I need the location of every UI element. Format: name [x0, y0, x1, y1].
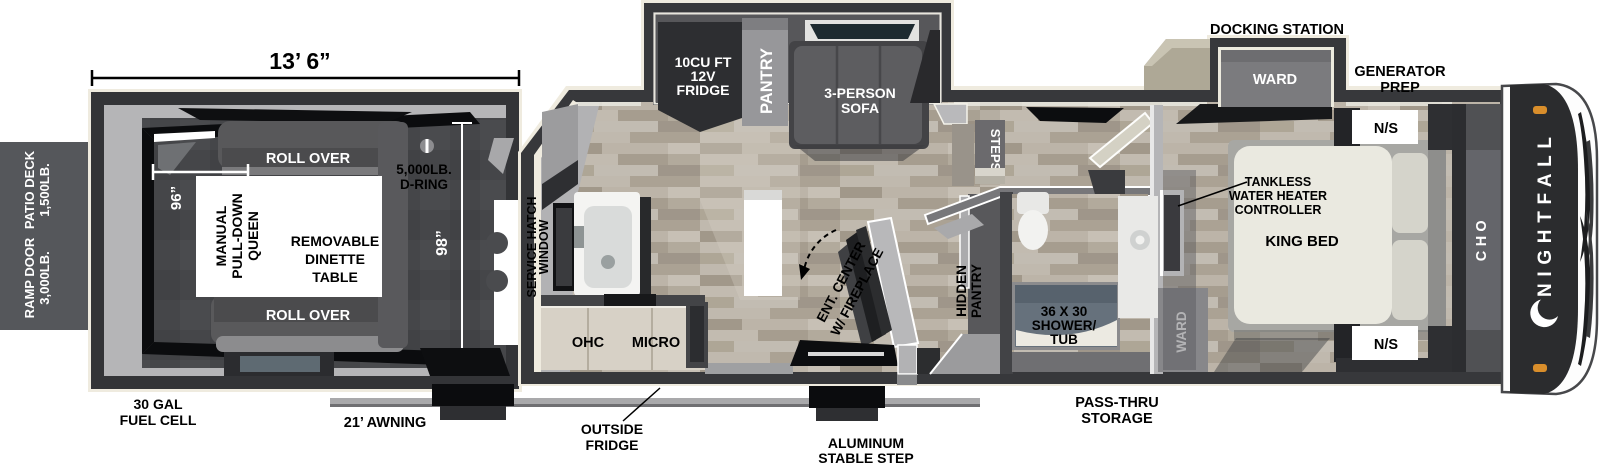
svg-text:PREP: PREP [1380, 80, 1420, 96]
svg-text:PANTRY: PANTRY [969, 264, 984, 318]
svg-text:QUEEN: QUEEN [245, 211, 261, 261]
svg-text:3,000LB.: 3,000LB. [37, 251, 52, 304]
svg-text:SOFA: SOFA [841, 100, 879, 116]
svg-text:TUB: TUB [1050, 332, 1078, 347]
svg-text:KING BED: KING BED [1265, 233, 1339, 250]
svg-text:36 X 30: 36 X 30 [1041, 304, 1088, 319]
svg-text:WATER HEATER: WATER HEATER [1229, 189, 1327, 203]
svg-text:WARD: WARD [1253, 72, 1297, 88]
svg-text:TABLE: TABLE [312, 269, 358, 285]
svg-text:NIGHTFALL: NIGHTFALL [1535, 135, 1556, 297]
svg-text:N/S: N/S [1374, 337, 1399, 353]
svg-text:FRIDGE: FRIDGE [677, 82, 730, 98]
svg-text:ALUMINUM: ALUMINUM [828, 435, 904, 451]
svg-text:CONTROLLER: CONTROLLER [1235, 203, 1322, 217]
svg-text:98”: 98” [434, 230, 451, 256]
svg-text:5,000LB.: 5,000LB. [396, 162, 452, 177]
svg-text:C: C [1474, 250, 1490, 261]
svg-text:21’ AWNING: 21’ AWNING [344, 415, 426, 431]
svg-text:PANTRY: PANTRY [758, 48, 776, 114]
svg-text:MANUAL: MANUAL [213, 205, 229, 266]
svg-text:30 GAL: 30 GAL [133, 396, 182, 412]
svg-text:WINDOW: WINDOW [537, 219, 551, 274]
svg-text:13’ 6”: 13’ 6” [269, 48, 330, 74]
svg-text:TANKLESS: TANKLESS [1245, 175, 1311, 189]
svg-text:ROLL OVER: ROLL OVER [266, 151, 351, 167]
svg-text:RAMP DOOR: RAMP DOOR [22, 237, 37, 318]
svg-text:H: H [1474, 236, 1490, 246]
svg-text:SHOWER/: SHOWER/ [1032, 318, 1097, 333]
svg-text:PULL-DOWN: PULL-DOWN [229, 193, 245, 279]
svg-text:STORAGE: STORAGE [1081, 411, 1153, 427]
svg-text:FRIDGE: FRIDGE [586, 437, 639, 453]
svg-text:REMOVABLE: REMOVABLE [291, 233, 379, 249]
svg-text:1,500LB.: 1,500LB. [37, 163, 52, 216]
svg-text:PATIO DECK: PATIO DECK [22, 150, 37, 229]
svg-text:OHC: OHC [572, 335, 605, 351]
svg-text:GENERATOR: GENERATOR [1354, 64, 1446, 80]
svg-text:PASS-THRU: PASS-THRU [1075, 395, 1159, 411]
svg-text:DINETTE: DINETTE [305, 251, 365, 267]
svg-text:DOCKING STATION: DOCKING STATION [1210, 22, 1344, 38]
svg-text:STEPS: STEPS [988, 129, 1003, 172]
svg-text:D-RING: D-RING [400, 177, 448, 192]
svg-text:FUEL CELL: FUEL CELL [120, 412, 197, 428]
svg-text:STABLE STEP: STABLE STEP [818, 450, 913, 464]
svg-text:O: O [1474, 220, 1490, 231]
svg-text:96”: 96” [168, 186, 185, 210]
svg-text:3-PERSON: 3-PERSON [824, 85, 896, 101]
svg-text:OUTSIDE: OUTSIDE [581, 421, 643, 437]
svg-text:MICRO: MICRO [632, 335, 680, 351]
svg-text:N/S: N/S [1374, 121, 1399, 137]
svg-text:HIDDEN: HIDDEN [954, 265, 969, 317]
svg-text:ROLL OVER: ROLL OVER [266, 308, 351, 324]
